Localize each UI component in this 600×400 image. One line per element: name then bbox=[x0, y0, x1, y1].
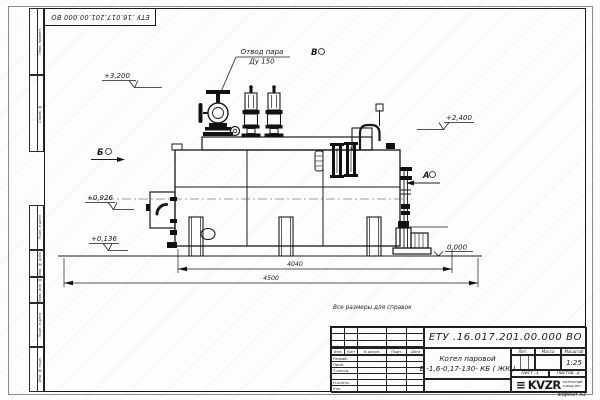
level-label-2400: +2,400 bbox=[446, 114, 472, 122]
level-label-3200: +3,200 bbox=[104, 72, 130, 80]
doc-name-line2: Е -1,6-0,17-130- КБ ( ЖК ) bbox=[420, 364, 516, 374]
drum-fitting-disc bbox=[231, 127, 240, 136]
company-logo-cell: ≡ KVZR КОТЕЛЬНЫЙ ЗАВОД РЭП bbox=[511, 377, 587, 393]
steam-outlet-valve bbox=[199, 90, 234, 136]
level-mark-0926 bbox=[85, 203, 134, 210]
change-record-grid bbox=[331, 327, 424, 348]
dimension-4500 bbox=[64, 258, 478, 287]
kvzr-logo-icon: ≡ bbox=[516, 379, 526, 391]
format-label: Формат А3 bbox=[500, 392, 586, 398]
scale-value: 1:25 bbox=[561, 355, 587, 370]
kvzr-logo-subtext: КОТЕЛЬНЫЙ ЗАВОД РЭП bbox=[563, 381, 583, 388]
mass-header: Масса bbox=[535, 348, 561, 355]
safety-valve-1 bbox=[242, 85, 261, 137]
kvzr-logo-text: KVZR bbox=[528, 378, 561, 392]
title-block: Изм. Лист N докум. Подп. Дата Разраб. Пр… bbox=[330, 326, 586, 392]
downcomer-pipe bbox=[400, 167, 412, 248]
steam-outlet-label-line1: Отвод пара bbox=[241, 48, 284, 56]
col-data: Дата bbox=[407, 349, 425, 354]
level-label-0000: 0,000 bbox=[447, 244, 468, 252]
dimension-label-4500: 4500 bbox=[263, 275, 279, 282]
level-mark-0000 bbox=[434, 252, 473, 257]
empty-cell bbox=[424, 379, 511, 393]
sheet-number-cell: Лист 1 bbox=[511, 370, 549, 377]
level-mark-0136 bbox=[89, 244, 128, 251]
document-designation: ЕТУ .16.017.201.00.000 ВО bbox=[424, 327, 587, 348]
col-list: Лист bbox=[345, 349, 358, 354]
document-name: Котел паровой Е -1,6-0,17-130- КБ ( ЖК ) bbox=[424, 348, 511, 379]
level-label-0136: +0,136 bbox=[91, 235, 117, 243]
lit-value-cell bbox=[511, 355, 535, 370]
view-letter-a: А bbox=[422, 171, 430, 181]
dimension-4040 bbox=[178, 249, 452, 273]
level-mark-2400 bbox=[417, 123, 474, 130]
signature-rows: Разраб. Пров. Т.контр. Н.контр. Утв. bbox=[331, 355, 424, 393]
doc-name-line1: Котел паровой bbox=[439, 354, 495, 364]
level-label-0926: +0,926 bbox=[87, 194, 113, 202]
burner bbox=[146, 192, 177, 248]
sheet-value: 1 bbox=[536, 371, 539, 376]
boiler-body bbox=[88, 137, 412, 246]
feed-pump bbox=[393, 221, 448, 254]
view-marker-v-circle bbox=[319, 49, 325, 55]
scale-header: Масштаб bbox=[561, 348, 587, 355]
view-letter-b: Б bbox=[97, 148, 104, 158]
row-utv: Утв. bbox=[332, 386, 358, 392]
col-izm: Изм. bbox=[332, 349, 345, 354]
drawing-sheet: ЕТУ .16.017.201.00.000 ВО Перв. примен. … bbox=[0, 0, 600, 400]
lit-header: Лит. bbox=[511, 348, 535, 355]
col-podp: Подп. bbox=[387, 349, 407, 354]
safety-valve-2 bbox=[265, 85, 284, 137]
level-mark-3200 bbox=[102, 81, 162, 88]
col-ndoc: N докум. bbox=[358, 349, 387, 354]
sheets-total-cell: Листов 2 bbox=[549, 370, 587, 377]
sheets-value: 2 bbox=[577, 371, 580, 376]
signature-header-row: Изм. Лист N докум. Подп. Дата bbox=[331, 348, 424, 355]
reference-note: Все размеры для справок bbox=[333, 305, 412, 311]
steam-outlet-label-line2: Ду 150 bbox=[248, 58, 275, 66]
view-letter-v: В bbox=[311, 48, 317, 58]
support-legs bbox=[189, 217, 381, 256]
mass-value-cell bbox=[535, 355, 561, 370]
dimension-label-4040: 4040 bbox=[287, 261, 303, 268]
sheet-label: Лист bbox=[521, 371, 533, 376]
sheets-label: Листов bbox=[556, 371, 573, 376]
